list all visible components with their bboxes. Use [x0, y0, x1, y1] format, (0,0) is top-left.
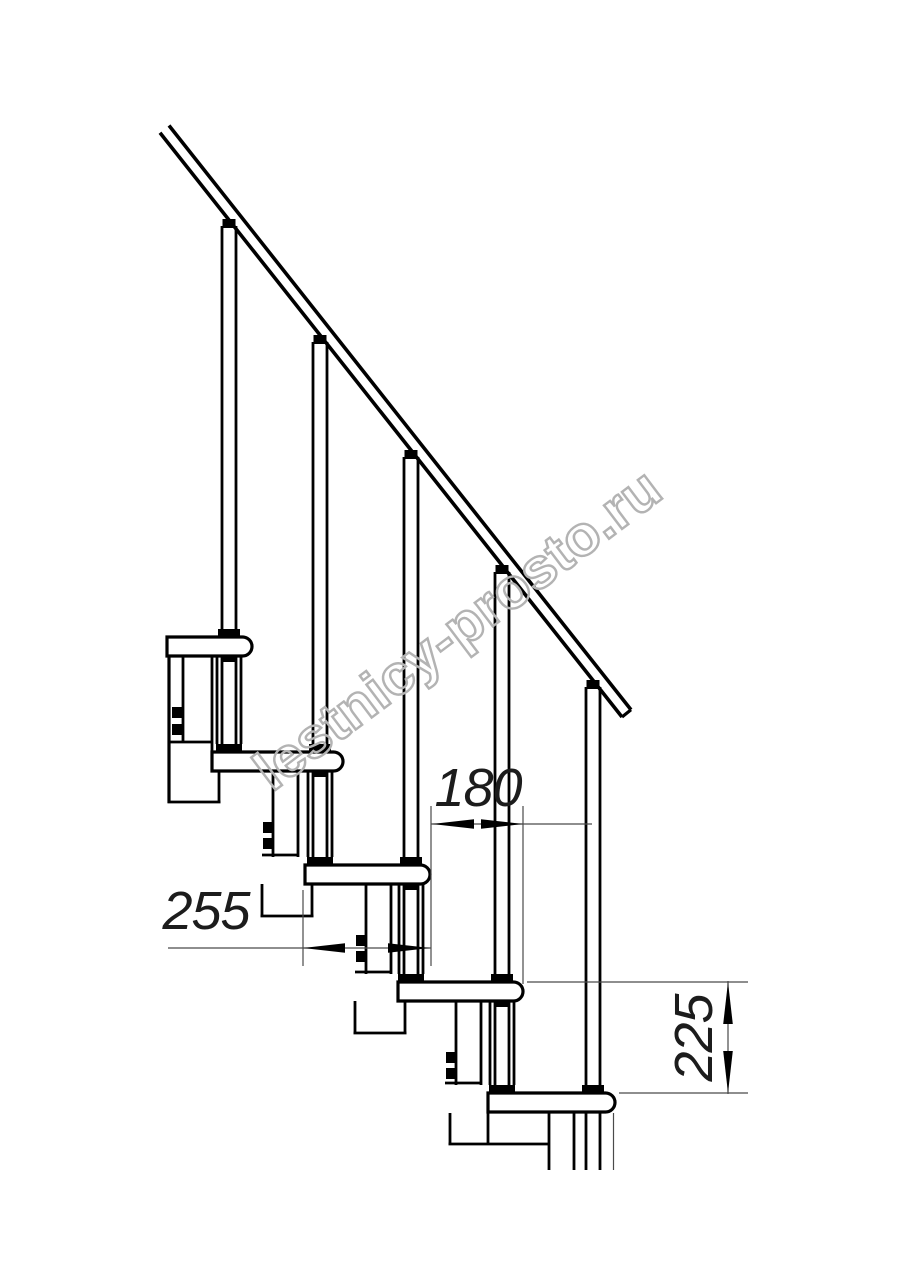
bolt-tab: [446, 1068, 457, 1079]
baluster-foot: [491, 974, 513, 982]
post-foot: [307, 857, 333, 865]
tread: [305, 865, 430, 884]
support-module: [449, 1113, 575, 1170]
tread: [488, 1093, 615, 1112]
bolt-tab: [446, 1052, 457, 1063]
baluster-foot: [218, 629, 240, 637]
bolt-tab: [356, 951, 367, 962]
front-post: [489, 1000, 515, 1093]
baluster-foot: [582, 1085, 604, 1093]
handrail: [160, 126, 631, 718]
post-foot: [489, 1085, 515, 1093]
bolt-tab: [263, 822, 274, 833]
baluster-foot: [400, 857, 422, 865]
tread: [167, 637, 252, 656]
post-nut: [404, 883, 418, 890]
baluster: [218, 219, 240, 637]
front-post: [398, 883, 424, 982]
arrowhead-left: [432, 819, 474, 829]
front-post: [307, 770, 333, 865]
front-post: [216, 655, 242, 752]
support-module: [169, 655, 212, 771]
dimension-180: 180: [431, 758, 592, 984]
bolt-tab: [172, 707, 183, 718]
arrowhead-left: [303, 943, 345, 953]
handrail-end-cap: [622, 710, 631, 717]
dimension-label: 180: [434, 758, 522, 818]
dimension-225: 225: [527, 981, 748, 1094]
post-nut: [222, 655, 236, 662]
staircase-drawing: 255 180 225 lestnicy-prosto.ru: [0, 0, 914, 1280]
drawing-canvas: 255 180 225 lestnicy-prosto.ru: [0, 0, 914, 1280]
dimension-label: 255: [161, 881, 251, 941]
post-foot: [398, 974, 424, 982]
post-foot: [216, 744, 242, 752]
baluster: [582, 680, 604, 1093]
bolt-tab: [263, 838, 274, 849]
tread: [398, 982, 523, 1001]
arrowhead-down: [723, 1051, 733, 1093]
arrowhead-right: [481, 819, 523, 829]
support-module: [261, 884, 392, 974]
dimension-label: 225: [664, 992, 724, 1082]
bolt-tab: [172, 724, 183, 735]
below-bottom-tread-rods: [586, 1113, 614, 1170]
arrowhead-up: [723, 982, 733, 1024]
bolt-tab: [356, 935, 367, 946]
post-nut: [495, 1000, 509, 1007]
support-module: [354, 1001, 482, 1085]
